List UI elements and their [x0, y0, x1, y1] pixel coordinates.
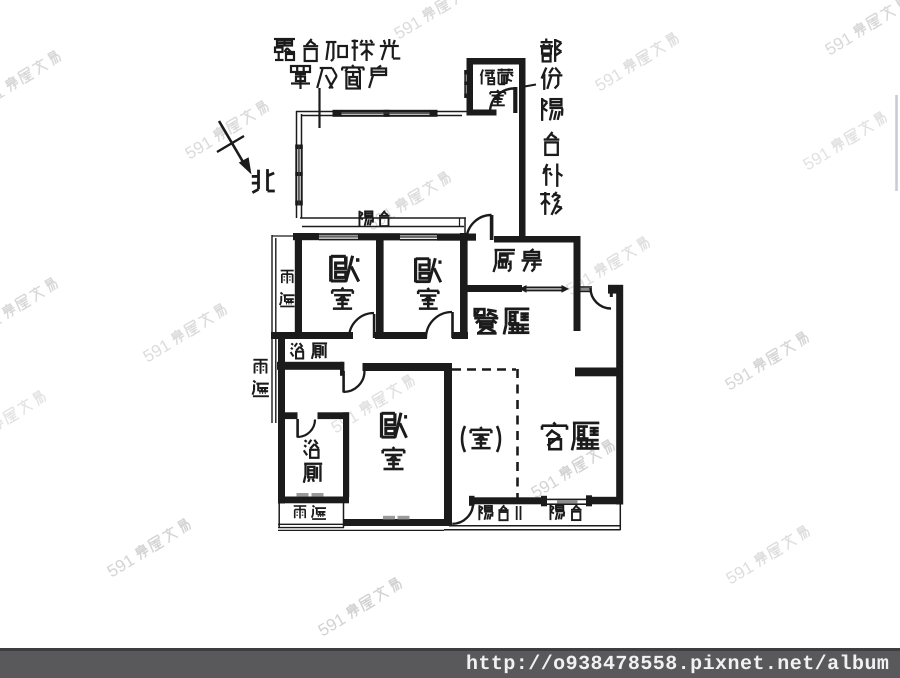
svg-text:http://o938478558.pixnet.net/a: http://o938478558.pixnet.net/album: [466, 653, 889, 676]
